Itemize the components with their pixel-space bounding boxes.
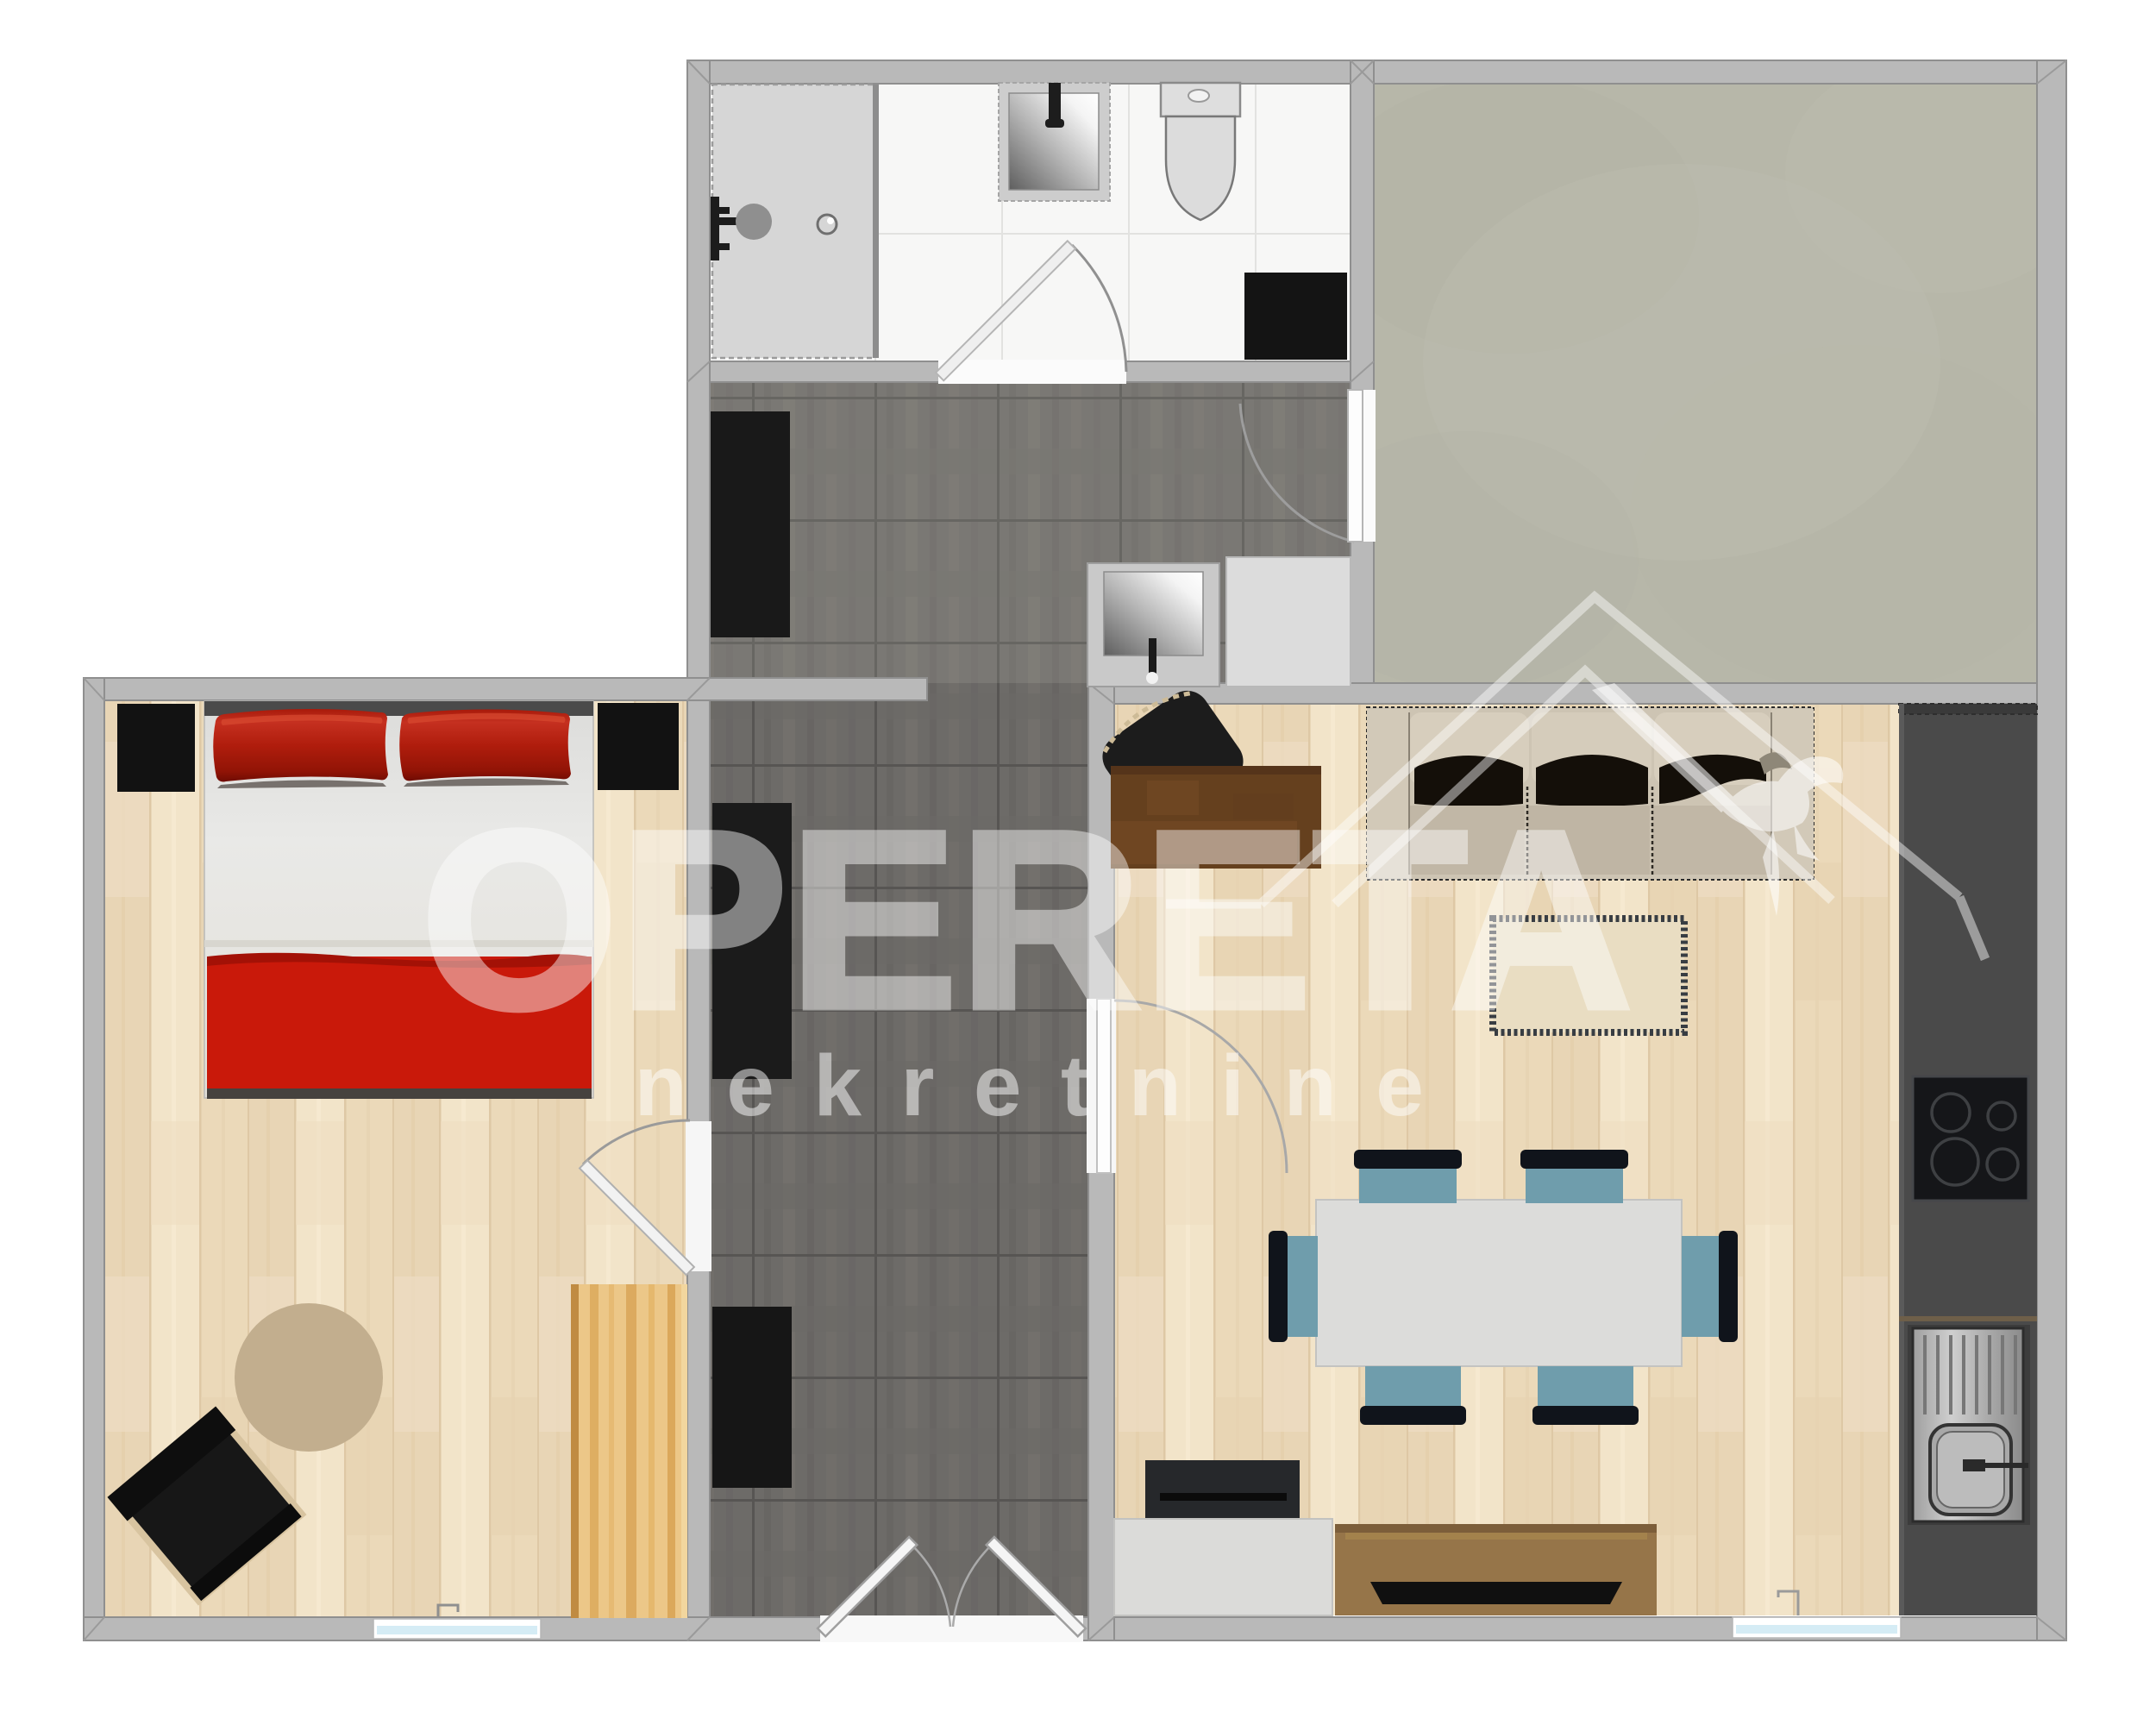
- svg-text:OPERETA: OPERETA: [421, 779, 1633, 1062]
- svg-text:nekretnine: nekretnine: [635, 1038, 1463, 1134]
